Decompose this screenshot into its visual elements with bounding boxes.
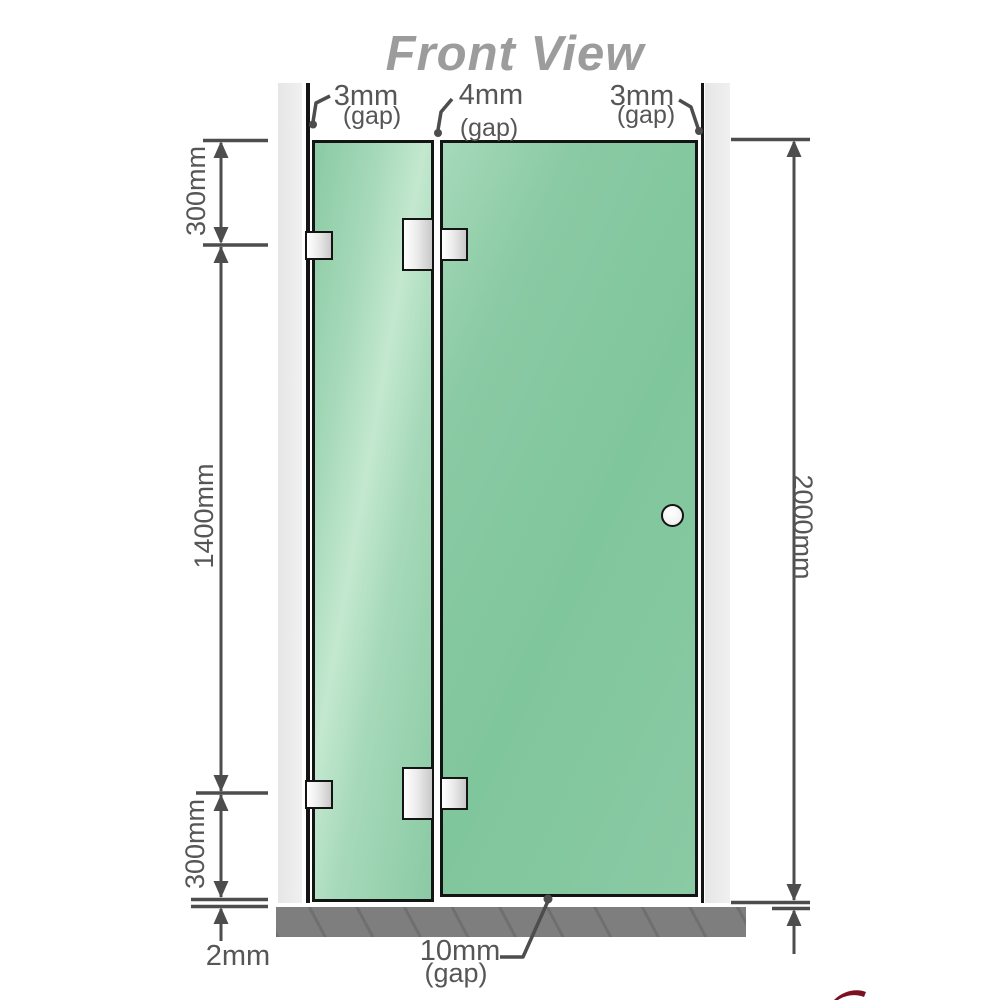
right-glass-door-panel: [440, 140, 698, 897]
leader-dot: [309, 121, 317, 129]
arrow-up-icon: [214, 907, 229, 924]
dimension-label-left-middle: 1400mm: [189, 441, 219, 591]
bottom-hinge-tab: [440, 777, 468, 810]
arrow-up-icon: [214, 246, 229, 263]
door-handle-knob: [661, 504, 684, 527]
gap-label-top-center-value: 4mm: [441, 80, 541, 110]
top-wall-bracket: [305, 231, 333, 260]
top-hinge-tab: [440, 228, 468, 261]
arrow-down-icon: [787, 884, 802, 901]
gap-label-top-center-note: (gap): [439, 115, 539, 141]
arrow-up-icon: [787, 909, 802, 926]
gap-label-top-left-note: (gap): [322, 103, 422, 129]
gap-label-bottom-center-note: (gap): [396, 959, 516, 987]
arrow-up-icon: [214, 141, 229, 158]
bottom-wall-bracket: [305, 780, 333, 809]
right-wall-edge: [701, 83, 705, 903]
arrow-up-icon: [214, 794, 229, 811]
red-watermark: [834, 990, 866, 1000]
arrow-down-icon: [214, 775, 229, 792]
right-wall: [705, 83, 730, 903]
left-wall: [278, 83, 302, 903]
dimension-label-left-lower: 300mm: [180, 779, 210, 909]
top-hinge-plate: [402, 218, 434, 271]
gap-label-bottom-left-value: 2mm: [178, 941, 298, 971]
dimension-label-right-overall: 2000mm: [788, 447, 818, 607]
arrow-down-icon: [214, 227, 229, 244]
bottom-hinge-plate: [402, 767, 434, 820]
diagram-title: Front View: [265, 28, 765, 80]
floor-base: [276, 907, 746, 937]
arrow-up-icon: [787, 140, 802, 157]
diagram-canvas: Front View: [0, 0, 1000, 1000]
gap-label-top-right-note: (gap): [596, 102, 696, 128]
arrow-down-icon: [214, 881, 229, 898]
dimension-label-left-upper: 300mm: [181, 126, 211, 256]
